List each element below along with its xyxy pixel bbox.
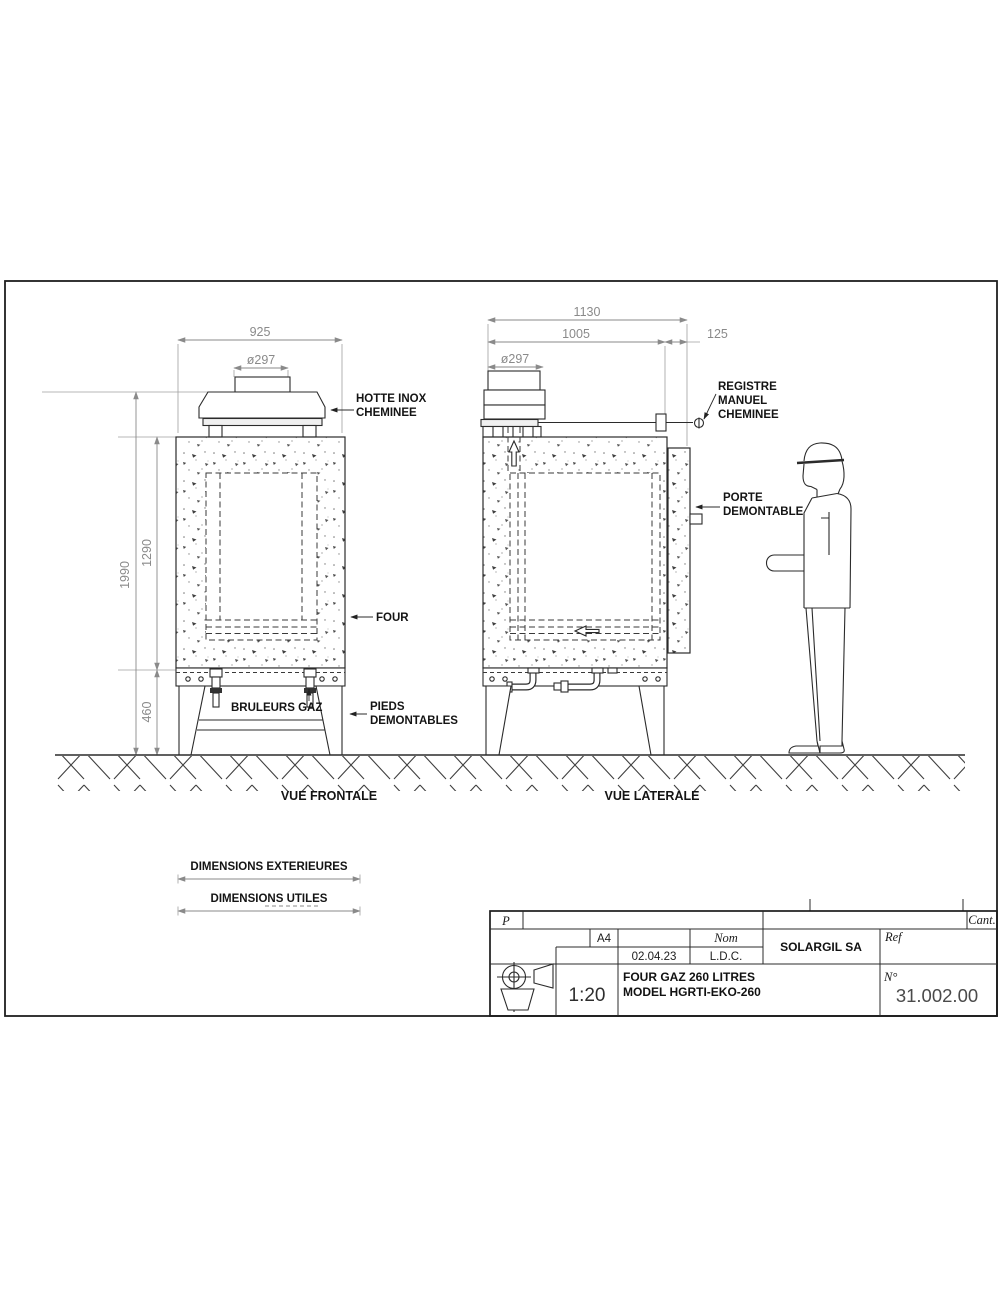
front-burner-left [210,669,222,707]
side-leg-right [639,686,664,755]
tb-cant: Cant. [968,913,995,927]
tb-nom: Nom [713,931,738,945]
tb-title-line1: FOUR GAZ 260 LITRES [623,970,755,984]
tb-format: A4 [597,933,612,945]
dim-front-width: 925 [250,325,271,339]
front-hood [199,392,325,418]
first-angle-projection-icon [497,962,553,1012]
svg-text:MANUEL: MANUEL [718,395,767,407]
tb-drawing-number: 31.002.00 [896,985,978,1006]
tb-ref: Ref [884,930,903,944]
dim-total-depth: 1130 [574,305,601,319]
dim-side-chimney: ø297 [501,352,530,366]
label-hood: HOTTE INOX [356,393,427,405]
side-view-caption: VUE LATERALE [605,789,700,803]
legend: DIMENSIONS EXTERIEURES DIMENSIONS UTILES [178,861,360,916]
dim-door-depth: 125 [707,327,728,341]
label-burners: BRULEURS GAZ [231,702,322,714]
ground-hatch [55,756,965,791]
side-door [668,448,690,653]
tb-company: SOLARGIL SA [780,940,862,954]
dim-legs-height: 460 [140,702,154,723]
worker-figure [767,443,852,753]
dim-total-height: 1990 [118,561,132,589]
dim-front-chimney: ø297 [247,353,276,367]
title-block: P Cant. A4 Nom SOLARGIL SA Ref 02.04.23 … [490,899,997,1016]
dim-body-height: 1290 [140,539,154,567]
tb-initials: L.D.C. [710,951,743,963]
dim-body-depth: 1005 [562,327,590,341]
legend-exterior: DIMENSIONS EXTERIEURES [190,861,348,873]
side-chimney-stub [488,371,540,390]
legend-useful: DIMENSIONS UTILES [211,893,328,905]
front-hood-plate [203,419,322,426]
svg-text:DEMONTABLE: DEMONTABLE [723,506,804,518]
tb-date: 02.04.23 [632,951,677,963]
front-view-caption: VUE FRONTALE [281,789,377,803]
svg-text:DEMONTABLES: DEMONTABLES [370,715,458,727]
side-chamber [510,473,660,640]
side-view: 1130 1005 125 ø297 690 [481,305,804,803]
label-door: PORTE [723,492,763,504]
front-view: 925 ø297 1990 1290 460 830 450 [42,325,458,803]
front-chimney-stub [235,377,290,392]
label-feet: PIEDS [370,701,405,713]
svg-text:CHEMINEE: CHEMINEE [718,409,779,421]
technical-drawing-page: 925 ø297 1990 1290 460 830 450 [0,0,1000,1300]
tb-title-line2: MODEL HGRTI-EKO-260 [623,985,761,999]
svg-text:CHEMINEE: CHEMINEE [356,407,417,419]
tb-scale: 1:20 [569,985,606,1006]
front-chamber [206,473,317,640]
label-four: FOUR [376,612,409,624]
ground [55,755,965,791]
door-handle [690,514,702,524]
label-damper: REGISTRE [718,381,777,393]
mitten-hand [767,555,775,571]
tb-p: P [501,914,510,928]
shoe-back [820,741,844,753]
tb-number-label: N° [883,970,897,984]
side-leg-left [486,686,511,755]
shoe-front [789,741,820,753]
